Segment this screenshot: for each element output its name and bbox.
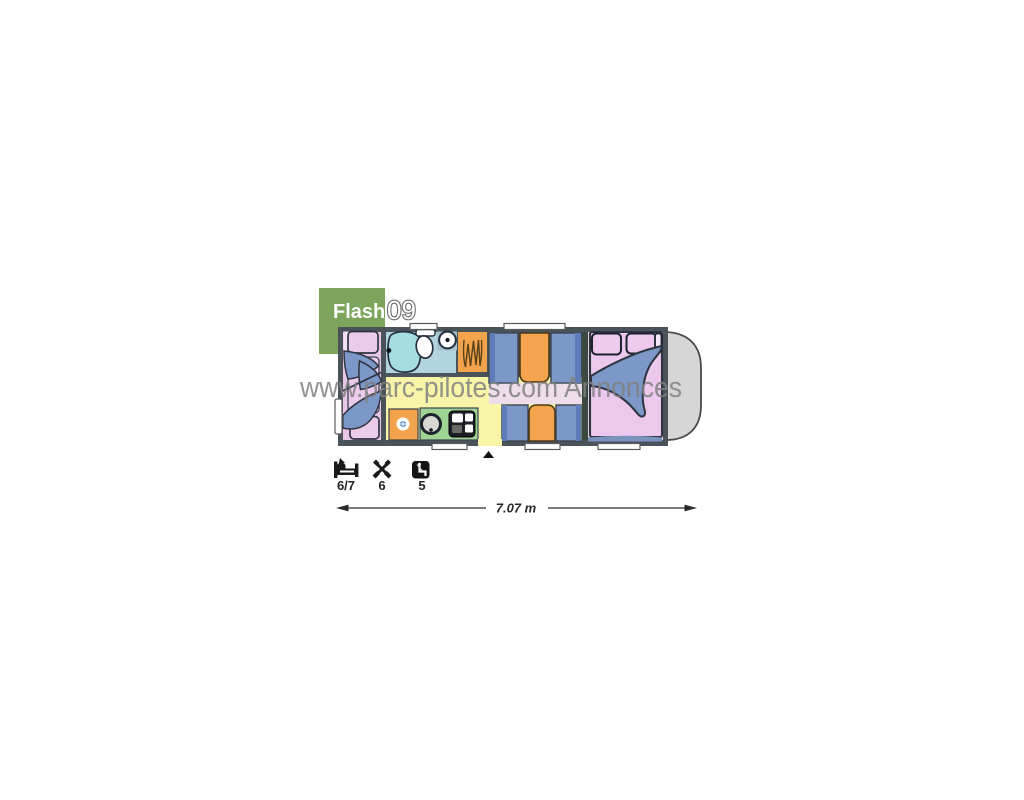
svg-text:6: 6 [378, 478, 385, 493]
svg-text:09: 09 [387, 295, 416, 325]
svg-text:www.parc-pilotes.com Annonces: www.parc-pilotes.com Annonces [299, 372, 682, 404]
svg-text:Flash: Flash [333, 301, 385, 323]
svg-text:6/7: 6/7 [337, 478, 355, 493]
svg-text:5: 5 [418, 478, 425, 493]
svg-text:7.07 m: 7.07 m [496, 501, 537, 516]
